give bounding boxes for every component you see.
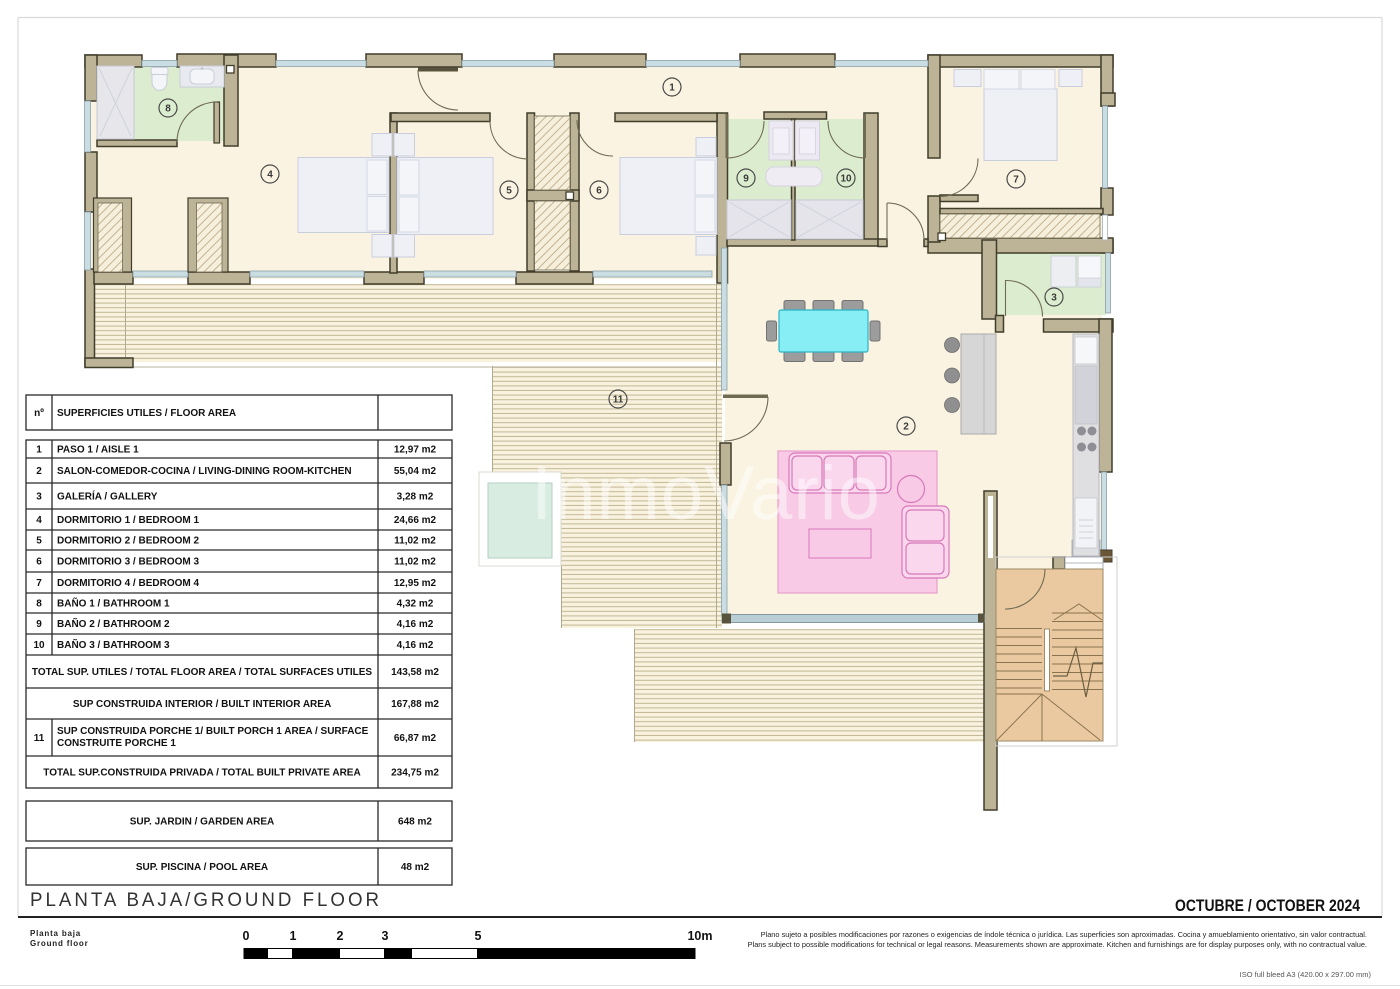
svg-text:SALON-COMEDOR-COCINA / LIVING: SALON-COMEDOR-COCINA / LIVING-DINING ROO… (57, 466, 352, 477)
svg-text:3,28 m2: 3,28 m2 (397, 492, 434, 503)
svg-text:DORMITORIO 3 / BEDROOM 3: DORMITORIO 3 / BEDROOM 3 (57, 557, 199, 568)
svg-text:SUPERFICIES UTILES / FLOOR ARE: SUPERFICIES UTILES / FLOOR AREA (57, 408, 236, 419)
svg-text:2: 2 (36, 466, 42, 477)
svg-text:11,02 m2: 11,02 m2 (394, 557, 436, 568)
svg-text:TOTAL SUP. UTILES / TOTAL FLOO: TOTAL SUP. UTILES / TOTAL FLOOR AREA / T… (32, 667, 373, 678)
svg-text:OCTUBRE / OCTOBER 2024: OCTUBRE / OCTOBER 2024 (1175, 896, 1360, 915)
svg-text:10: 10 (840, 174, 852, 185)
svg-text:DORMITORIO 2 / BEDROOM 2: DORMITORIO 2 / BEDROOM 2 (57, 536, 199, 547)
svg-text:DORMITORIO 4 / BEDROOM 4: DORMITORIO 4 / BEDROOM 4 (57, 578, 199, 589)
svg-text:6: 6 (596, 186, 602, 197)
svg-text:5: 5 (36, 536, 42, 547)
svg-text:Ground floor: Ground floor (30, 939, 88, 948)
svg-text:9: 9 (743, 174, 749, 185)
svg-text:4: 4 (267, 170, 273, 181)
svg-text:234,75 m2: 234,75 m2 (391, 768, 439, 779)
svg-text:InmoVario: InmoVario (531, 451, 881, 536)
svg-text:5: 5 (506, 186, 512, 197)
svg-text:PLANTA BAJA/GROUND FLOOR: PLANTA BAJA/GROUND FLOOR (30, 889, 382, 911)
svg-text:2: 2 (337, 929, 344, 943)
svg-text:4,16 m2: 4,16 m2 (397, 640, 434, 651)
svg-text:3: 3 (382, 929, 389, 943)
svg-text:BAÑO 1 / BATHROOM 1: BAÑO 1 / BATHROOM 1 (57, 597, 170, 610)
svg-text:10m: 10m (687, 929, 712, 943)
svg-text:55,04 m2: 55,04 m2 (394, 466, 437, 477)
svg-text:5: 5 (475, 929, 482, 943)
svg-text:3: 3 (36, 492, 42, 503)
svg-text:BAÑO 2 / BATHROOM 2: BAÑO 2 / BATHROOM 2 (57, 617, 170, 630)
svg-text:nº: nº (34, 408, 44, 419)
svg-text:1: 1 (669, 83, 675, 94)
svg-text:48 m2: 48 m2 (401, 862, 430, 873)
svg-text:143,58 m2: 143,58 m2 (391, 667, 439, 678)
svg-text:66,87 m2: 66,87 m2 (394, 733, 437, 744)
svg-text:3: 3 (1051, 293, 1057, 304)
svg-text:2: 2 (903, 422, 909, 433)
svg-text:1: 1 (36, 445, 42, 456)
svg-text:CONSTRUITE PORCHE 1: CONSTRUITE PORCHE 1 (57, 738, 176, 749)
svg-text:PASO 1 / AISLE 1: PASO 1 / AISLE 1 (57, 445, 139, 456)
svg-text:12,97 m2: 12,97 m2 (394, 445, 437, 456)
svg-text:1: 1 (290, 929, 297, 943)
svg-text:648 m2: 648 m2 (398, 817, 432, 828)
svg-text:0: 0 (243, 929, 250, 943)
svg-text:SUP CONSTRUIDA INTERIOR / BUIL: SUP CONSTRUIDA INTERIOR / BUILT INTERIOR… (73, 699, 331, 710)
svg-text:10: 10 (33, 640, 45, 651)
svg-text:9: 9 (36, 619, 42, 630)
svg-text:4: 4 (36, 515, 42, 526)
svg-text:4,16 m2: 4,16 m2 (397, 619, 434, 630)
svg-text:7: 7 (36, 578, 42, 589)
svg-text:6: 6 (36, 557, 42, 568)
svg-text:Planta baja: Planta baja (30, 929, 81, 938)
svg-text:12,95 m2: 12,95 m2 (394, 578, 437, 589)
svg-text:24,66 m2: 24,66 m2 (394, 515, 437, 526)
svg-text:BAÑO 3 / BATHROOM 3: BAÑO 3 / BATHROOM 3 (57, 638, 170, 651)
svg-text:11: 11 (34, 733, 45, 744)
svg-text:SUP CONSTRUIDA PORCHE 1/ BUILT: SUP CONSTRUIDA PORCHE 1/ BUILT PORCH 1 A… (57, 726, 369, 737)
svg-text:SUP. JARDIN / GARDEN AREA: SUP. JARDIN / GARDEN AREA (130, 817, 274, 828)
svg-text:8: 8 (36, 599, 42, 610)
svg-text:7: 7 (1013, 175, 1019, 186)
svg-text:DORMITORIO 1 / BEDROOM 1: DORMITORIO 1 / BEDROOM 1 (57, 515, 199, 526)
svg-text:11: 11 (613, 395, 624, 406)
svg-text:Plano sujeto a posibles modifi: Plano sujeto a posibles modificaciones p… (761, 930, 1367, 939)
svg-text:ISO full bleed A3 (420.00 x 29: ISO full bleed A3 (420.00 x 297.00 mm) (1240, 970, 1372, 979)
svg-text:167,88 m2: 167,88 m2 (391, 699, 439, 710)
svg-text:GALERÍA / GALLERY: GALERÍA / GALLERY (57, 490, 158, 503)
svg-text:TOTAL SUP.CONSTRUIDA PRIVADA /: TOTAL SUP.CONSTRUIDA PRIVADA / TOTAL BUI… (43, 768, 360, 779)
svg-text:11,02 m2: 11,02 m2 (394, 536, 436, 547)
svg-text:4,32 m2: 4,32 m2 (397, 599, 434, 610)
svg-text:SUP. PISCINA / POOL AREA: SUP. PISCINA / POOL AREA (136, 862, 268, 873)
svg-text:Plans subject to possible modi: Plans subject to possible modifications … (748, 940, 1367, 949)
svg-text:8: 8 (165, 104, 171, 115)
